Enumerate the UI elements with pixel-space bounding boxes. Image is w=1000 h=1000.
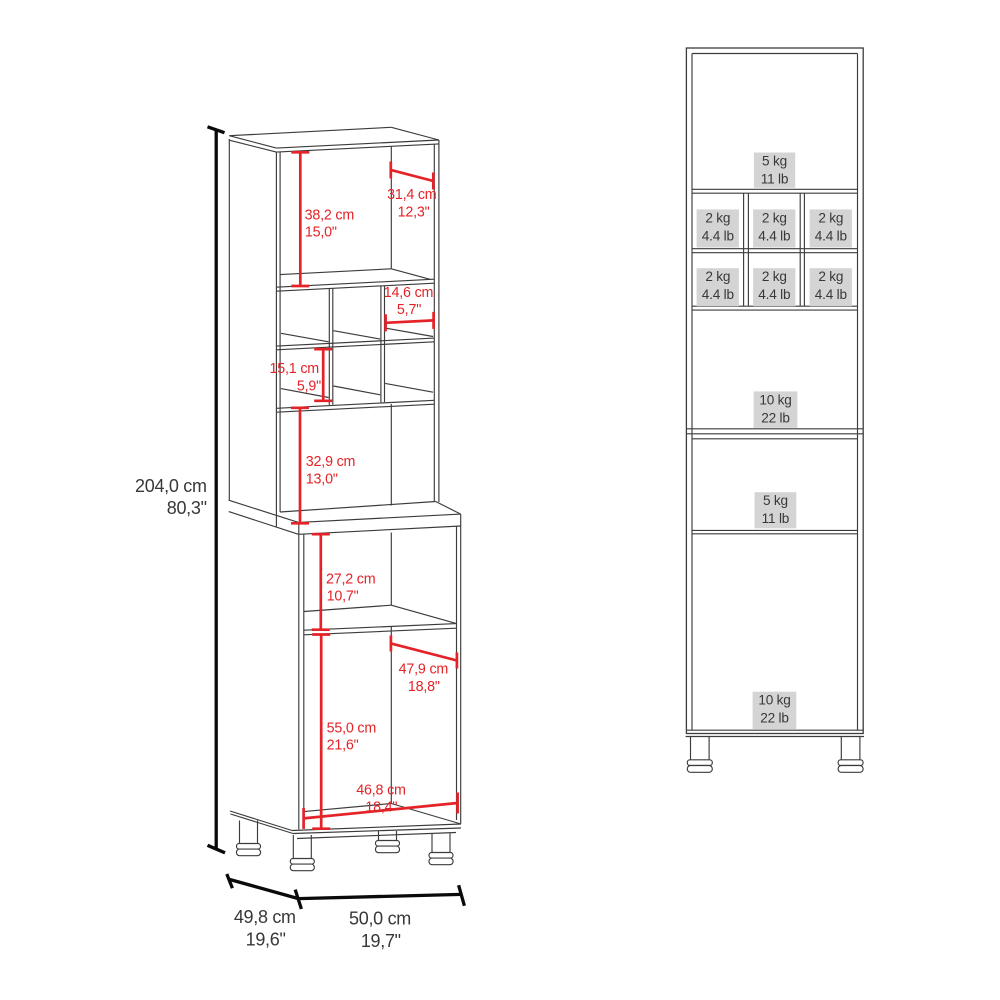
svg-text:22 lb: 22 lb — [760, 711, 788, 726]
svg-text:2 kg: 2 kg — [818, 269, 843, 284]
svg-text:21,6": 21,6" — [327, 738, 359, 754]
svg-text:5,7": 5,7" — [397, 302, 421, 318]
svg-text:18,8": 18,8" — [408, 679, 440, 695]
svg-text:2 kg: 2 kg — [762, 210, 787, 225]
svg-text:27,2 cm: 27,2 cm — [326, 571, 375, 587]
svg-text:5 kg: 5 kg — [762, 154, 787, 169]
svg-text:2 kg: 2 kg — [705, 210, 730, 225]
svg-text:19,7": 19,7" — [361, 931, 401, 951]
svg-text:18,4": 18,4" — [365, 799, 397, 815]
svg-text:2 kg: 2 kg — [762, 269, 787, 284]
svg-text:22 lb: 22 lb — [761, 410, 789, 425]
svg-text:32,9 cm: 32,9 cm — [306, 454, 355, 470]
svg-text:11 lb: 11 lb — [762, 511, 789, 526]
svg-text:4.4 lb: 4.4 lb — [702, 228, 734, 243]
svg-text:50,0 cm: 50,0 cm — [349, 908, 411, 928]
svg-text:14,6 cm: 14,6 cm — [384, 285, 433, 301]
svg-text:5,9": 5,9" — [297, 378, 321, 394]
svg-text:31,4 cm: 31,4 cm — [387, 187, 436, 203]
svg-text:15,0": 15,0" — [305, 225, 337, 241]
svg-text:11 lb: 11 lb — [761, 172, 788, 187]
svg-text:80,3": 80,3" — [167, 498, 207, 518]
svg-text:15,1 cm: 15,1 cm — [270, 361, 319, 377]
svg-text:38,2 cm: 38,2 cm — [305, 207, 354, 223]
svg-text:4.4 lb: 4.4 lb — [815, 287, 847, 302]
svg-text:13,0": 13,0" — [306, 472, 338, 488]
svg-text:204,0 cm: 204,0 cm — [135, 476, 207, 496]
svg-text:49,8 cm: 49,8 cm — [234, 907, 296, 927]
svg-text:55,0 cm: 55,0 cm — [327, 721, 376, 737]
svg-text:46,8 cm: 46,8 cm — [356, 783, 405, 799]
svg-text:10 kg: 10 kg — [759, 392, 791, 407]
svg-text:4.4 lb: 4.4 lb — [702, 287, 734, 302]
svg-text:4.4 lb: 4.4 lb — [758, 287, 790, 302]
svg-text:4.4 lb: 4.4 lb — [758, 228, 790, 243]
svg-text:4.4 lb: 4.4 lb — [815, 228, 847, 243]
svg-text:10,7": 10,7" — [327, 588, 359, 604]
svg-text:2 kg: 2 kg — [705, 269, 730, 284]
svg-text:19,6": 19,6" — [246, 929, 286, 949]
svg-text:5 kg: 5 kg — [763, 493, 788, 508]
svg-text:47,9 cm: 47,9 cm — [399, 662, 448, 678]
svg-text:12,3": 12,3" — [398, 205, 430, 221]
svg-text:2 kg: 2 kg — [818, 210, 843, 225]
svg-text:10 kg: 10 kg — [758, 693, 790, 708]
